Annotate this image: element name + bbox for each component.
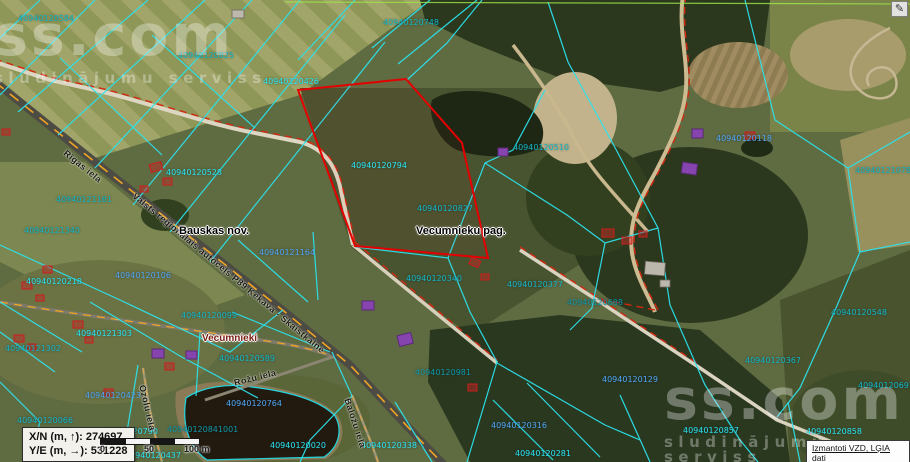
sand-patch — [533, 72, 617, 164]
scale-bar: 0 50 100 m — [100, 438, 220, 458]
admin-label: Vecumnieki — [202, 333, 257, 344]
edit-tool-button[interactable]: ✎ — [891, 1, 908, 17]
admin-label: Vecumnieku pag. — [416, 225, 506, 237]
pencil-icon: ✎ — [895, 3, 904, 15]
field-plowed — [688, 42, 788, 108]
scale-label-0: 0 — [100, 444, 105, 454]
admin-label: Bauskas nov. — [179, 225, 249, 237]
scale-label-100: 100 m — [184, 444, 210, 454]
pond-small — [741, 139, 773, 157]
map-viewport[interactable]: 4094012058440940120825409401207484094012… — [0, 0, 910, 462]
scale-label-50: 50 — [144, 444, 154, 454]
attribution-box: Izmantoti VZD, LĢIA dati — [806, 440, 910, 462]
attribution-link[interactable]: Izmantoti VZD, LĢIA dati — [812, 443, 890, 462]
